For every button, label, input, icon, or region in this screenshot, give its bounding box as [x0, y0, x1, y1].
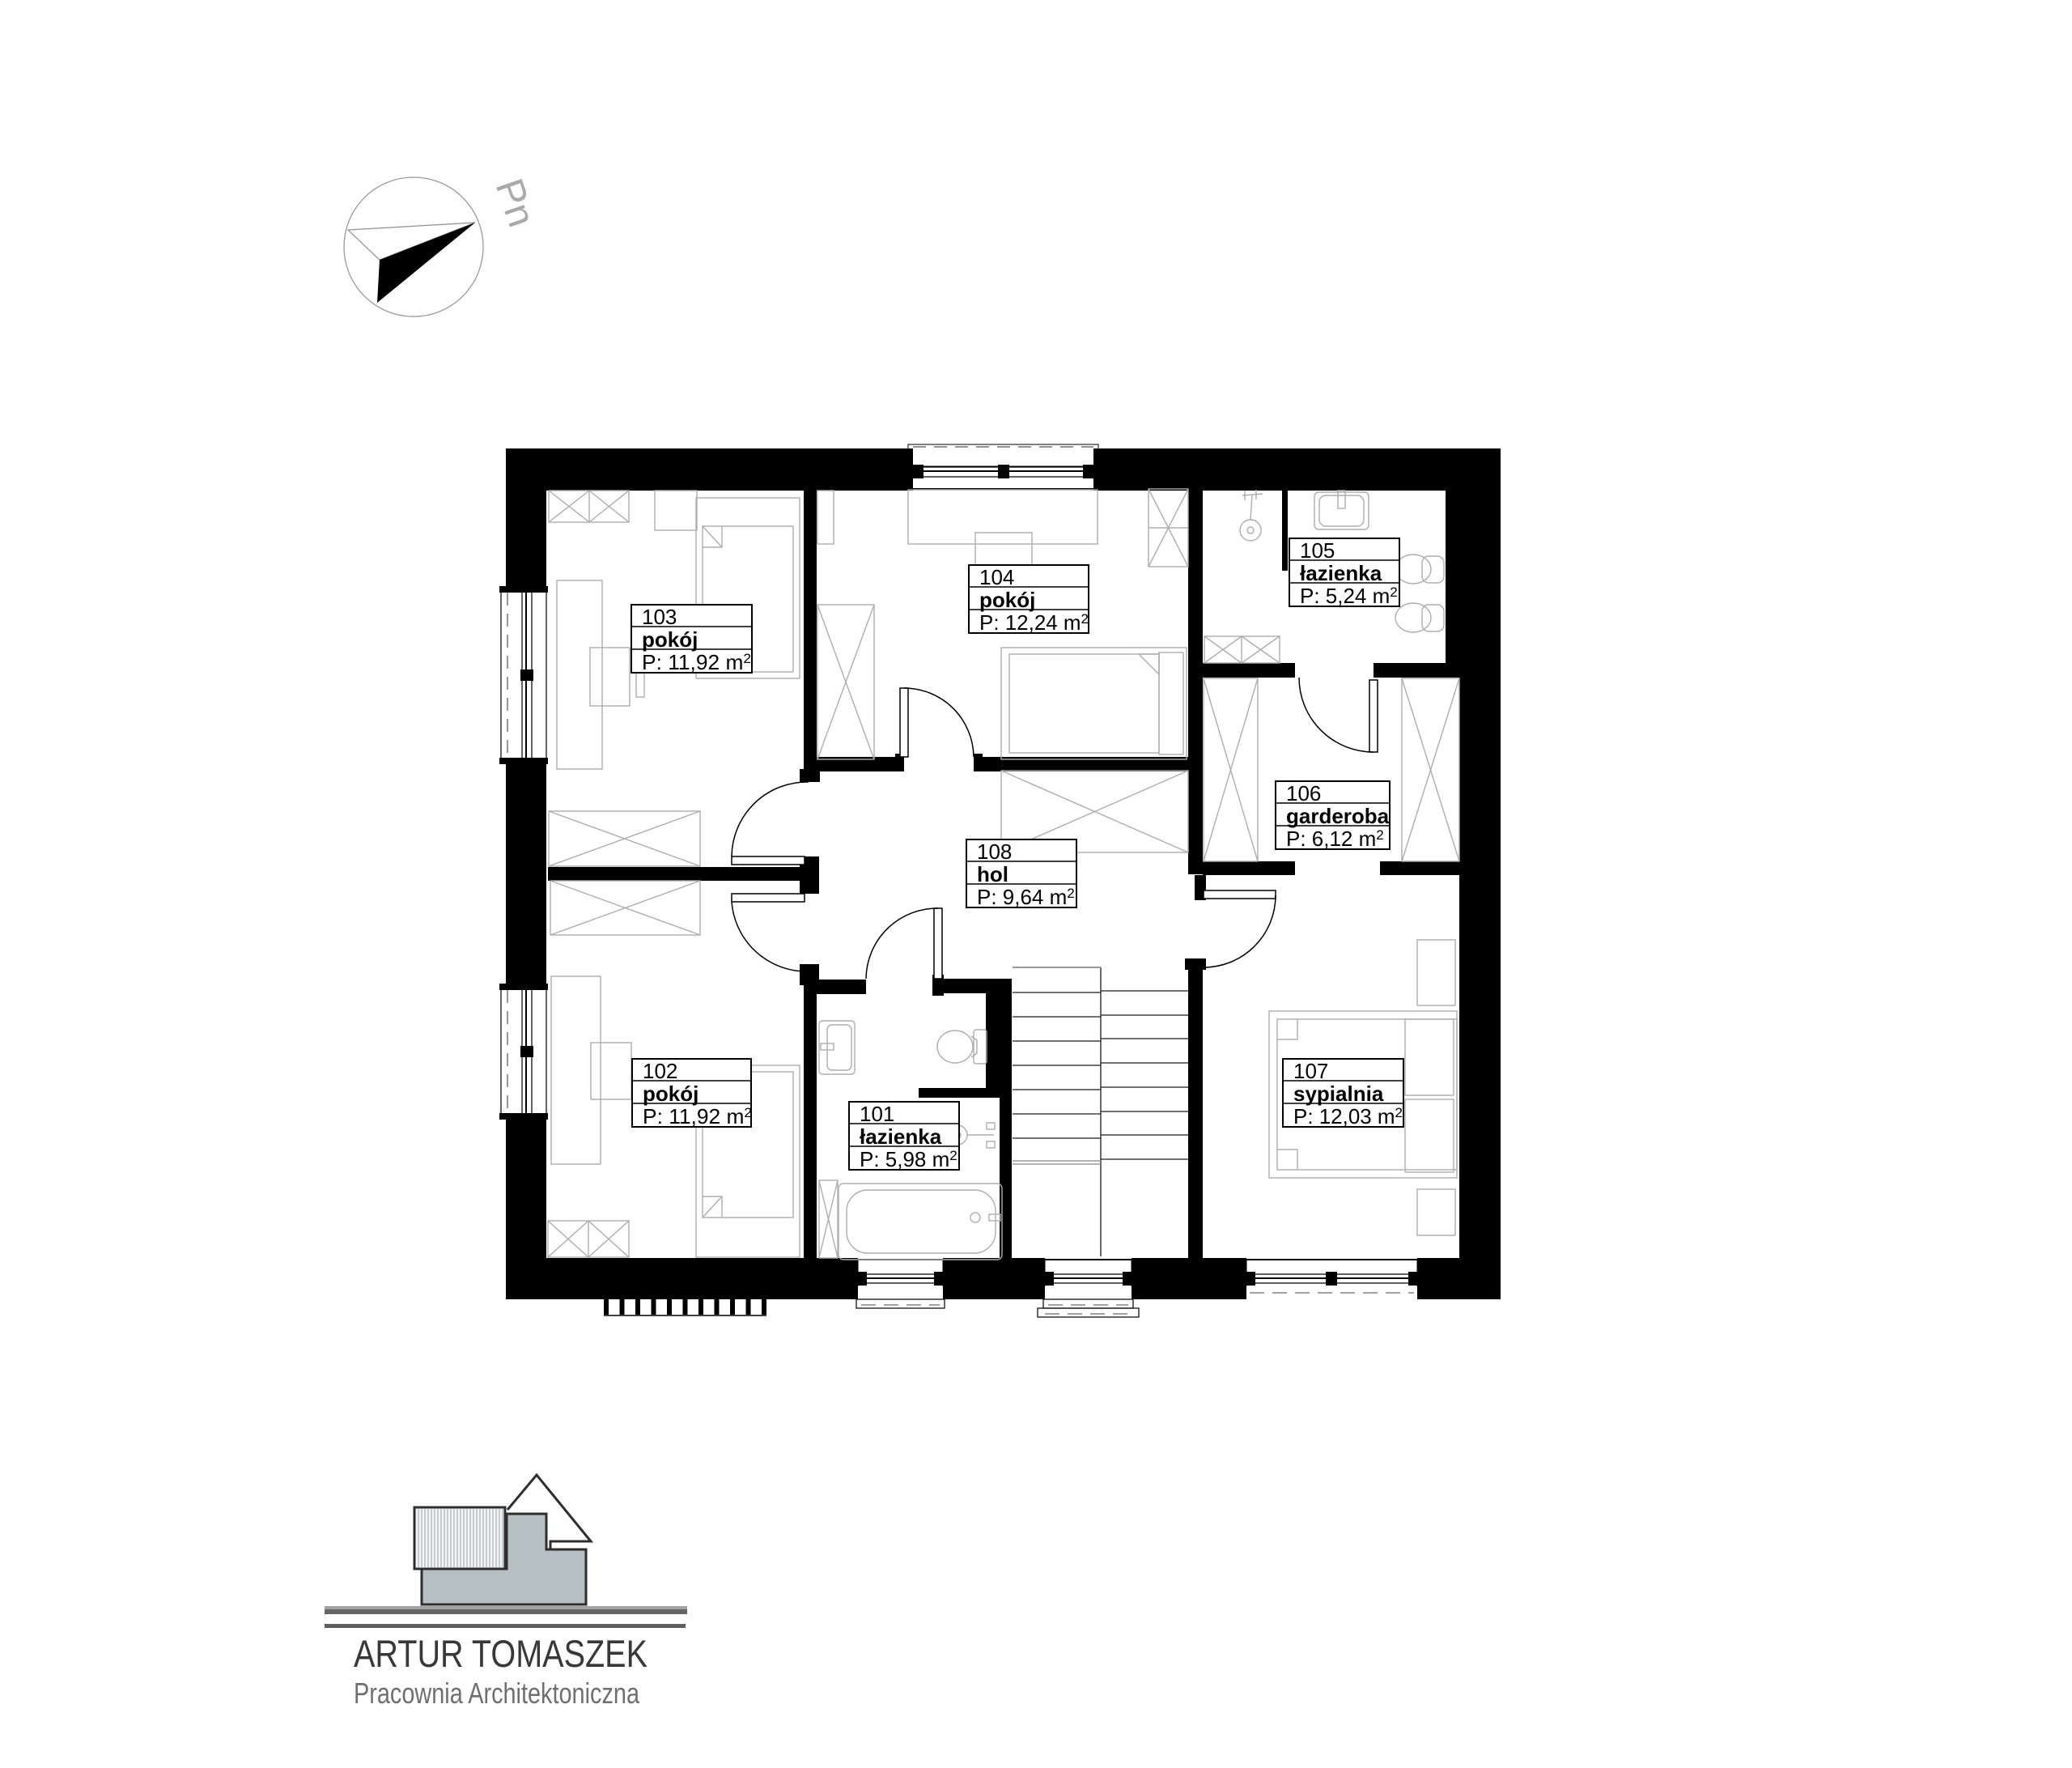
- svg-text:hol: hol: [977, 862, 1008, 886]
- svg-text:garderoba: garderoba: [1286, 804, 1390, 828]
- svg-text:pokój: pokój: [979, 588, 1035, 612]
- svg-text:105: 105: [1300, 538, 1335, 563]
- svg-text:Pracownia Architektoniczna: Pracownia Architektoniczna: [354, 1677, 640, 1710]
- svg-text:107: 107: [1293, 1059, 1328, 1083]
- svg-text:P: 12,24 m2: P: 12,24 m2: [979, 610, 1089, 635]
- svg-text:108: 108: [977, 839, 1012, 864]
- svg-text:P: 5,24 m2: P: 5,24 m2: [1300, 584, 1398, 608]
- svg-text:pokój: pokój: [643, 1082, 698, 1106]
- svg-text:sypialnia: sypialnia: [1293, 1082, 1384, 1106]
- svg-text:106: 106: [1286, 781, 1321, 805]
- svg-text:104: 104: [979, 565, 1014, 589]
- svg-text:łazienka: łazienka: [860, 1124, 942, 1149]
- svg-text:103: 103: [642, 605, 677, 629]
- svg-text:P: 9,64 m2: P: 9,64 m2: [977, 885, 1075, 909]
- svg-text:P: 11,92 m2: P: 11,92 m2: [642, 650, 751, 674]
- svg-text:101: 101: [860, 1102, 894, 1126]
- svg-text:łazienka: łazienka: [1300, 561, 1382, 585]
- svg-text:P: 12,03 m2: P: 12,03 m2: [1293, 1104, 1403, 1128]
- svg-text:P: 11,92 m2: P: 11,92 m2: [643, 1104, 752, 1128]
- svg-text:P: 5,98 m2: P: 5,98 m2: [860, 1147, 957, 1171]
- svg-text:102: 102: [643, 1059, 677, 1083]
- svg-text:pokój: pokój: [642, 627, 698, 652]
- svg-text:ARTUR TOMASZEK: ARTUR TOMASZEK: [354, 1632, 647, 1675]
- svg-text:P: 6,12 m2: P: 6,12 m2: [1286, 827, 1384, 851]
